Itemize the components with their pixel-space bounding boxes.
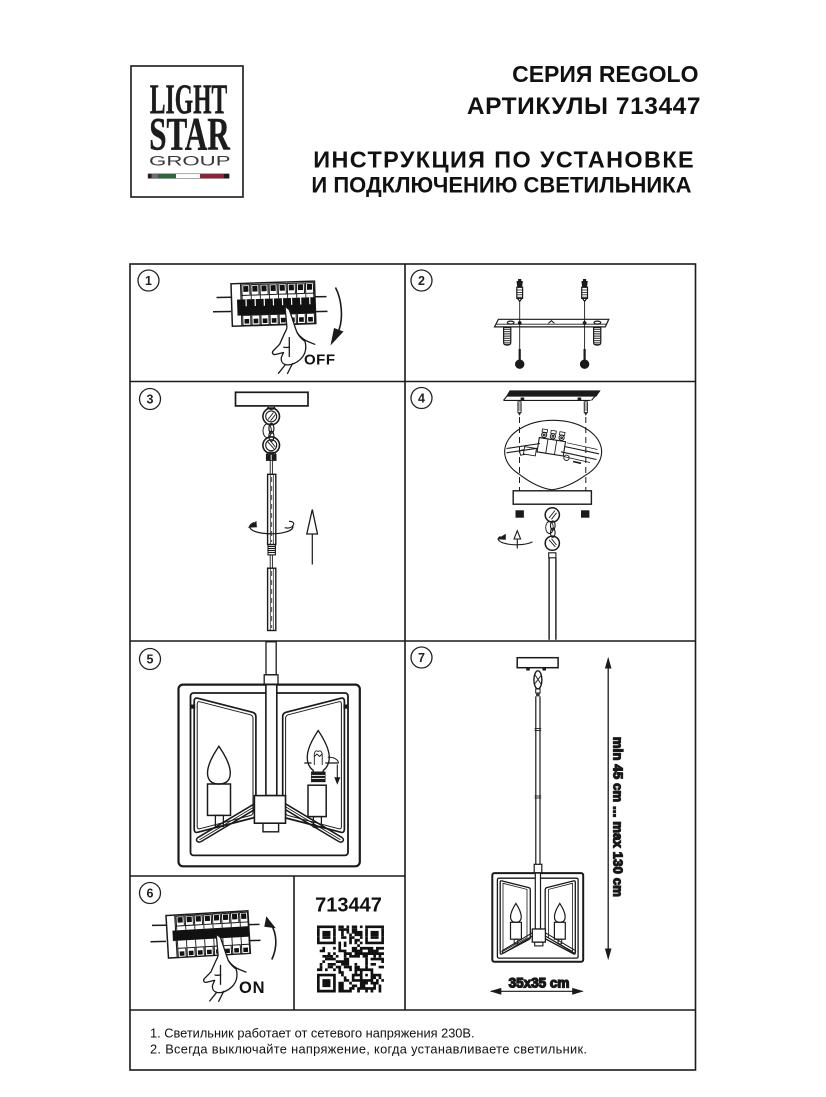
svg-text:1. Светильник работает от сете: 1. Светильник работает от сетевого напря… [150,1025,475,1040]
svg-text:СЕРИЯ REGOLO: СЕРИЯ REGOLO [512,61,698,87]
svg-text:7: 7 [418,651,425,665]
svg-text:GROUP: GROUP [149,153,231,168]
svg-text:2: 2 [418,274,425,288]
svg-text:OFF: OFF [304,352,336,369]
svg-text:6: 6 [147,887,154,901]
svg-text:ON: ON [239,979,265,997]
svg-text:5: 5 [147,653,154,667]
svg-text:3: 3 [147,393,154,407]
svg-text:АРТИКУЛЫ 713447: АРТИКУЛЫ 713447 [467,93,701,120]
svg-text:min 45 cm ... max 130 cm: min 45 cm ... max 130 cm [611,737,626,897]
svg-text:ИНСТРУКЦИЯ ПО УСТАНОВКЕ: ИНСТРУКЦИЯ ПО УСТАНОВКЕ [313,147,695,173]
svg-text:4: 4 [418,392,425,406]
svg-text:713447: 713447 [315,895,382,917]
svg-text:35x35 cm: 35x35 cm [509,975,570,990]
svg-text:2. Всегда выключайте напряжени: 2. Всегда выключайте напряжение, когда у… [150,1041,587,1056]
svg-text:1: 1 [145,274,152,288]
svg-text:И ПОДКЛЮЧЕНИЮ СВЕТИЛЬНИКА: И ПОДКЛЮЧЕНИЮ СВЕТИЛЬНИКА [311,173,691,198]
